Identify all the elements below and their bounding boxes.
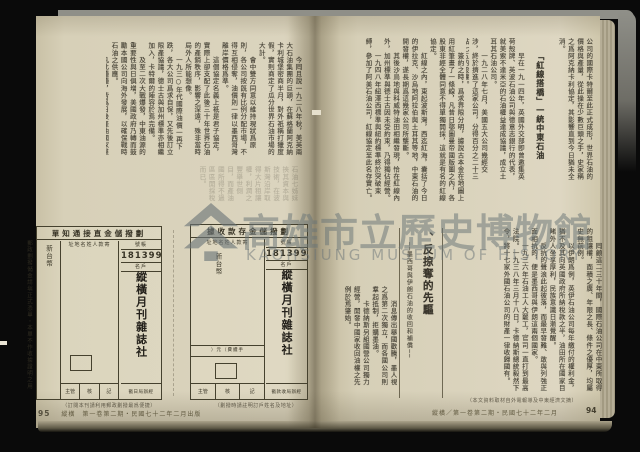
sign-cell: 核 [216, 384, 241, 399]
amount-label: 新台幣 [213, 253, 223, 285]
section2-heading-box: 、反掠奪的先驅 ──墨西哥與伊朗石油的收回和補償── [399, 228, 443, 398]
office-stamp-cell: 戳款收局辦經 [266, 383, 307, 399]
page-stack-edge [600, 20, 615, 418]
payee-column: 號帳 181399 名戶 縱橫月刊雜誌社 戳款收局辦經 [266, 239, 307, 400]
right-page-number: 94 [586, 406, 596, 415]
scan-artifact [0, 341, 7, 345]
office-stamp-cell: 戳日局辦經 [121, 383, 161, 399]
payee-name: 縱橫月刊雜誌社 [280, 269, 293, 384]
form-caption: （訂閱本刊請利用郵政劃撥最爲便捷） [56, 402, 162, 409]
sender-label: 址地名姓人款寄 [191, 239, 264, 248]
payee-name-area: 縱橫月刊雜誌社 [121, 271, 161, 384]
form-caption: （劃撥時請註明訂戶姓名及地址） [206, 402, 306, 409]
right-section1-lead: 公司的國際卡特爾至此正式成形，世界石油的價格與產量，從此操在少數巨頭之手，史家稱… [466, 38, 602, 186]
left-footer-text: 縱橫 第一卷第二期・民國七十二年二月出版 [61, 411, 201, 418]
sender-label: 址地名姓人款寄 [61, 241, 118, 250]
section2-subtitle: ──墨西哥與伊朗石油的收回和補償── [404, 242, 413, 398]
account-number: 181399 [121, 250, 161, 263]
account-number: 181399 [266, 248, 307, 261]
left-page-bleedthrough-text: 石油七姊妹挾其資本與技術，在波斯灣沿岸取得大片租讓權，利潤之豐舉世側目，而產油國… [110, 166, 298, 208]
form-title: 據收款存金儲撥劃 [191, 225, 307, 238]
account-label: 號帳 [266, 239, 307, 248]
scan-artifact [312, 110, 321, 115]
perforation-line [173, 230, 174, 396]
giro-receipt-form: 據收款存金儲撥劃 址地名姓人款寄 新台幣 ）元（費續手 主管 核 記 號帳 18… [190, 224, 308, 400]
sign-cell: 主管 [191, 384, 216, 399]
book-corner-edge [618, 12, 636, 172]
right-section2-right-text: 囘顧這二三十年間，國際石油公司在中東所取得的租讓權，面積之廣、年限之長、條件之優… [443, 228, 602, 392]
sign-cell: 記 [240, 384, 264, 399]
payee-name-area: 縱橫月刊雜誌社 [266, 269, 307, 384]
form-title: 單知通接直金儲撥劃 [37, 227, 161, 240]
sign-off-row: 主管 核 記 [191, 383, 264, 399]
scanned-book-spread: 今囘且說一九二八年秋，美英兩大石油集團的巨頭，在蘇格蘭阿克納卡利城堡密商半月，對… [0, 0, 640, 452]
sign-off-row: 主管 核 記 [61, 383, 118, 399]
stamp-box [215, 363, 237, 379]
fee-row: ）元（費續手 [191, 345, 264, 357]
amount-label: 新台幣 [44, 245, 54, 275]
sign-cell: 記 [100, 384, 118, 399]
section1-body-a: 早在一九一四年，英國外交部卽曾邀集英荷殼牌、英波石油公司與德意志銀行的代表，就美… [466, 38, 524, 186]
sender-region: 址地名姓人款寄 新台幣 ）元（費續手 主管 核 記 [191, 239, 265, 400]
section2-heading: 、反掠奪的先驅 [423, 232, 432, 398]
section1-intro: 公司的國際卡特爾至此正式成形，世界石油的價格與產量，從此操在少數巨頭之手，史家稱… [556, 38, 593, 186]
sign-cell: 核 [80, 384, 99, 399]
right-section2-left-text: 消息傳出舉國歡騰，墨人視之爲第二次獨立，而各國公司則羣起抵制，拒購墨油。 卡德納… [330, 286, 397, 392]
sign-cell: 主管 [61, 384, 80, 399]
payee-name: 縱橫月刊雜誌社 [134, 271, 147, 384]
section1-heading: 「紅線搭橋」一統中東石油 [536, 52, 545, 186]
sender-column: 址地名姓人款寄 主管 核 記 [61, 241, 119, 400]
left-margin-note: 郵政劃撥儲金請塡正式憑單・本單不作收據證明之用 [25, 240, 33, 396]
right-section1-continued: 簽約之時，爲求界限分明，據說古本金在地圖上用紅筆畫了一條線，凡昔日鄂圖曼帝國版圖… [330, 38, 464, 204]
amount-column: 新台幣 [37, 241, 61, 400]
stamp-box [70, 355, 92, 371]
payee-column: 號帳 181399 名戶 縱橫月刊雜誌社 戳日局辦經 [121, 241, 161, 400]
account-label: 號帳 [121, 241, 161, 250]
giro-notification-form: 單知通接直金儲撥劃 新台幣 址地名姓人款寄 主管 核 記 號帳 181399 名… [36, 226, 162, 400]
right-footer-text: 縱橫／第一卷第二期・民國七十二年二月 [432, 410, 558, 417]
right-footer-note: （本文資料取材自外電報導及中東經濟文摘） [447, 397, 597, 404]
right-page-footer: 縱橫／第一卷第二期・民國七十二年二月 [432, 408, 558, 417]
left-page-body-text: 今囘且說一九二八年秋，美英兩大石油集團的巨頭，在蘇格蘭阿克納卡利城堡密商半月，對… [106, 42, 302, 162]
left-page-footer: 95 縱橫 第一卷第二期・民國七十二年二月出版 [38, 409, 201, 418]
left-page-number: 95 [38, 409, 50, 418]
